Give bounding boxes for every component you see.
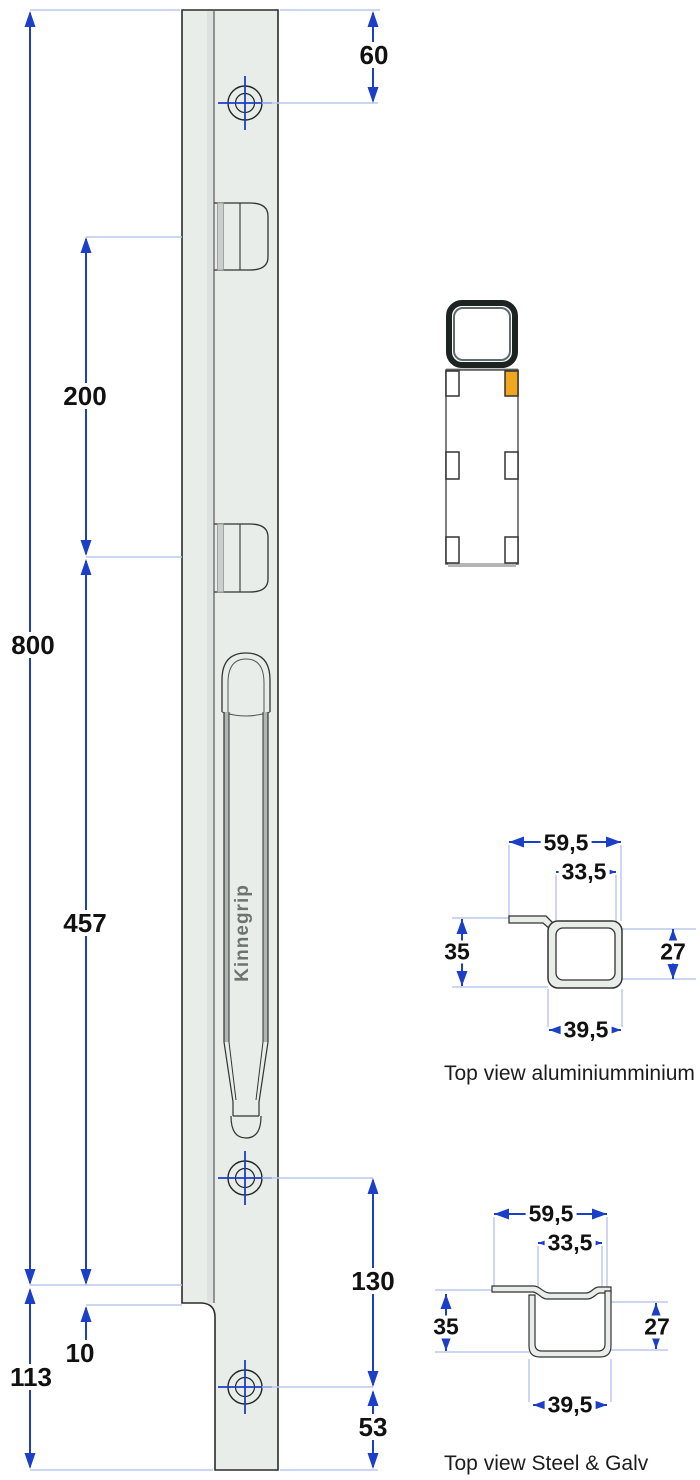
side-post-front-view — [182, 10, 278, 1470]
drawing-svg — [0, 0, 700, 1480]
post-marker-front-left — [446, 371, 459, 396]
steel-tube-width-label: 39,5 — [545, 1394, 596, 1417]
truck-top-view — [446, 303, 518, 565]
steel-profile-section — [492, 1286, 611, 1357]
dim-label-top-hole-offset: 60 — [357, 42, 392, 68]
post-marker-rear-left — [446, 537, 459, 563]
alu-tube-width-label: 39,5 — [561, 1019, 612, 1042]
dim-label-keeper-spacing: 200 — [60, 383, 109, 409]
steel-u-channel — [529, 1291, 611, 1357]
truck-cab-outline — [449, 303, 515, 365]
dim-label-handle-section: 457 — [60, 910, 109, 936]
steel-right-height-label: 27 — [641, 1316, 673, 1339]
alu-left-height-label: 35 — [441, 941, 473, 964]
alu-inner-width-label: 33,5 — [559, 861, 610, 884]
steel-inner-width-label: 33,5 — [545, 1232, 596, 1255]
post-back-strip-shading — [207, 11, 214, 1303]
post-marker-rear-right — [505, 537, 518, 563]
alu-tube-inner — [556, 928, 615, 980]
dim-label-step: 10 — [63, 1340, 98, 1366]
steel-left-height-label: 35 — [430, 1316, 462, 1339]
steel-flange-sheet — [492, 1286, 611, 1299]
brand-label: Kinnegrip — [232, 884, 254, 982]
steel-overall-width-label: 59,5 — [526, 1203, 577, 1226]
dim-label-bottom-hole-offset: 53 — [356, 1414, 391, 1440]
dim-label-bottom-section: 113 — [7, 1364, 55, 1390]
steel-section-caption: Top view Steel & Galv — [444, 1452, 648, 1475]
alu-section-caption: Top view aluminiumminium — [444, 1062, 695, 1085]
alu-profile-section — [509, 916, 622, 988]
post-marker-mid-right — [505, 452, 518, 479]
post-marker-front-right-highlight — [505, 371, 518, 396]
alu-right-height-label: 27 — [657, 941, 689, 964]
extension-lines — [30, 10, 696, 1470]
dim-label-total-length: 800 — [8, 632, 57, 658]
dim-label-hole-spacing: 130 — [348, 1268, 397, 1294]
technical-drawing-canvas: 800 200 457 113 10 60 130 53 Kinnegrip 5… — [0, 0, 700, 1480]
alu-overall-width-label: 59,5 — [541, 832, 592, 855]
post-marker-mid-left — [446, 452, 459, 479]
